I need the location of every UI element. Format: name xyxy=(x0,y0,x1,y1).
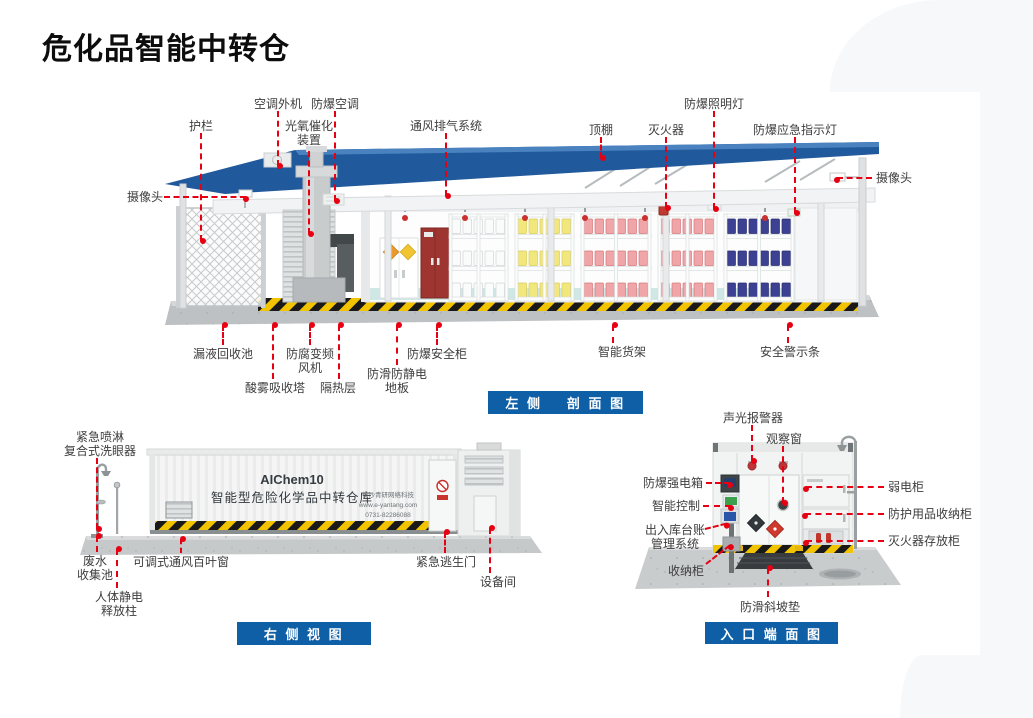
leader-line xyxy=(612,325,614,343)
label-ex-light: 防爆照明灯 xyxy=(684,97,744,111)
leader-line xyxy=(334,111,336,201)
label-power-box: 防爆强电箱 xyxy=(643,476,703,490)
smart-racks xyxy=(449,214,794,301)
leader-line xyxy=(96,536,98,552)
leader-line xyxy=(308,151,310,234)
label-ac-outdoor: 空调外机 xyxy=(254,97,302,111)
container-company-text: 长沙青研网络科技 xyxy=(362,490,415,499)
label-waste-pool: 废水 收集池 xyxy=(77,554,113,583)
leader-line xyxy=(806,540,884,542)
guardrail-fence xyxy=(176,204,265,308)
label-fan: 防腐变频 风机 xyxy=(286,347,334,376)
label-vent-system: 通风排气系统 xyxy=(410,119,482,133)
static-release-pole xyxy=(114,482,120,534)
label-louver: 可调式通风百叶窗 xyxy=(133,555,229,569)
label-ppe-cabinet: 防护用品收纳柜 xyxy=(888,507,972,521)
label-insulation: 隔热层 xyxy=(320,381,356,395)
leader-line xyxy=(787,325,789,343)
label-photo-oxy: 光氧催化 装置 xyxy=(285,119,333,148)
leader-line xyxy=(806,486,884,488)
label-extinguisher: 灭火器 xyxy=(648,123,684,137)
leader-line xyxy=(837,177,872,179)
bottom-right-deco xyxy=(900,655,1033,718)
label-antistatic-floor: 防滑防静电 地板 xyxy=(367,367,427,396)
label-window: 观察窗 xyxy=(766,432,802,446)
label-alarm: 声光报警器 xyxy=(723,411,783,425)
label-ledger: 出入库台账 管理系统 xyxy=(645,523,705,552)
leader-line xyxy=(489,528,491,573)
leader-line xyxy=(277,111,279,166)
leader-line xyxy=(751,425,753,461)
container-phone-text: 0731-82286088 xyxy=(365,512,411,519)
label-camera-right: 摄像头 xyxy=(876,171,912,185)
leader-line xyxy=(116,549,118,588)
page-title: 危化品智能中转仓 xyxy=(42,24,290,68)
right-edge-band xyxy=(980,0,1033,718)
safety-cabinet-red xyxy=(421,228,449,298)
leader-line xyxy=(180,539,182,553)
leader-line xyxy=(309,325,311,345)
leader-line xyxy=(805,513,884,515)
label-escape-door: 紧急逃生门 xyxy=(416,555,476,569)
container-model-text: AIChem10 xyxy=(260,472,324,487)
label-ext-cabinet: 灭火器存放柜 xyxy=(888,534,960,548)
label-eyewash: 紧急喷淋 复合式洗眼器 xyxy=(64,430,136,459)
leader-line xyxy=(200,133,202,241)
leader-line xyxy=(713,111,715,209)
concrete-pad xyxy=(80,536,542,555)
left-section-diagram xyxy=(165,138,880,330)
leader-line xyxy=(767,568,769,597)
label-ex-indicator: 防爆应急指示灯 xyxy=(753,123,837,137)
leader-line xyxy=(396,325,398,365)
container-name-text: 智能型危险化学品中转仓库 xyxy=(211,490,373,505)
leader-line xyxy=(794,137,796,213)
caption-right-view: 右 侧 视 图 xyxy=(237,622,371,645)
leader-line xyxy=(222,325,224,345)
leader-line xyxy=(703,505,731,507)
page: 危化品智能中转仓 xyxy=(0,0,1033,718)
leader-line xyxy=(782,446,784,503)
label-canopy: 顶棚 xyxy=(589,123,613,137)
leader-line xyxy=(272,325,274,379)
equipment-room xyxy=(458,443,520,536)
label-equipment-room: 设备间 xyxy=(480,575,516,589)
label-ramp: 防滑斜坡垫 xyxy=(740,600,800,614)
leader-line xyxy=(445,133,447,196)
label-ex-ac: 防爆空调 xyxy=(311,97,359,111)
label-camera-left: 摄像头 xyxy=(127,190,163,204)
canopy-roof xyxy=(165,142,879,194)
label-static-pole: 人体静电 释放柱 xyxy=(95,590,143,619)
anti-slip-ramp xyxy=(735,553,813,569)
escape-door xyxy=(429,460,456,531)
leader-line xyxy=(338,325,340,379)
label-smart-ctrl: 智能控制 xyxy=(652,499,700,513)
caption-entrance-view: 入 口 端 面 图 xyxy=(705,622,838,644)
leader-line xyxy=(444,532,446,553)
leader-line xyxy=(600,137,602,158)
label-storage-cabinet: 收纳柜 xyxy=(668,564,704,578)
leader-line xyxy=(164,196,246,198)
container-website-text: www.e-yantang.com xyxy=(358,502,418,509)
label-guardrail: 护栏 xyxy=(189,119,213,133)
label-acid-tower: 酸雾吸收塔 xyxy=(245,381,305,395)
leader-line xyxy=(665,137,667,208)
ppe-cabinet xyxy=(803,509,849,529)
label-weak-box: 弱电柜 xyxy=(888,480,924,494)
leader-line xyxy=(436,325,438,345)
label-warning-strip: 安全警示条 xyxy=(760,345,820,359)
right-view-diagram: AIChem10 智能型危险化学品中转仓库 长沙青研网络科技 www.e-yan… xyxy=(80,440,550,560)
container-body: AIChem10 智能型危险化学品中转仓库 长沙青研网络科技 www.e-yan… xyxy=(147,449,461,534)
label-leak-pool: 漏液回收池 xyxy=(193,347,253,361)
top-right-deco xyxy=(830,0,1033,92)
container-hazard-strip xyxy=(155,521,453,530)
caption-left-section: 左 侧 剖 面 图 xyxy=(488,391,643,414)
leader-line xyxy=(706,482,730,484)
label-smart-rack: 智能货架 xyxy=(598,345,646,359)
label-safety-cabinet: 防爆安全柜 xyxy=(407,347,467,361)
louver-vent xyxy=(166,502,192,518)
leader-line xyxy=(96,458,98,529)
